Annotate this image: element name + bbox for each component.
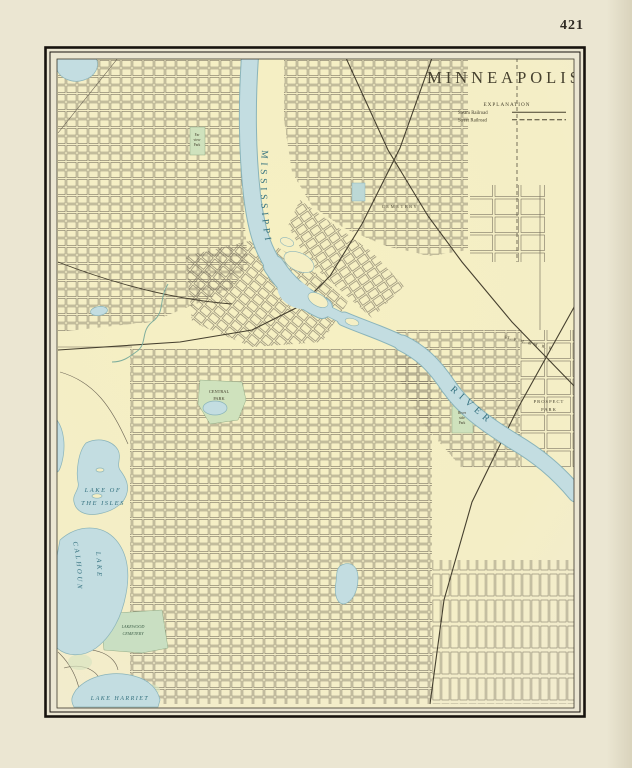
label-lake-harriet: LAKE HARRIET (90, 696, 150, 702)
grid-east-edge (470, 185, 545, 262)
label-central-park-2: PARK (213, 396, 225, 401)
grid-southeast-rows (432, 560, 578, 704)
atlas-page: 421 (0, 0, 632, 768)
label-riverside-3: Park (459, 421, 466, 425)
label-lakewood-2: CEMETERY (122, 631, 144, 636)
central-park-pond (203, 401, 227, 415)
harriet-park-patch (68, 654, 92, 670)
label-farview-3: Park (194, 143, 201, 147)
grid-south-minneapolis (130, 348, 432, 704)
label-riverside-2: side (459, 416, 465, 420)
label-farview-1: Far (195, 133, 201, 137)
label-lake-of-the-isles-2: THE ISLES (81, 500, 125, 507)
label-prospect-park-2: PARK (541, 407, 557, 412)
minneapolis-map: MINNEAPOLIS EXPLANATION Steam Railroad S… (0, 0, 632, 768)
legend-item-steam: Steam Railroad (458, 111, 488, 116)
label-prospect-park-1: PROSPECT (534, 399, 565, 404)
label-lakewood-1: LAKEWOOD (121, 624, 145, 629)
label-central-park-1: CENTRAL (209, 389, 230, 394)
label-lake-of-the-isles-1: LAKE OF (84, 487, 122, 494)
label-farview-2: view (194, 138, 201, 142)
legend-item-street: Street Railroad (458, 119, 488, 124)
legend-heading: EXPLANATION (483, 102, 530, 108)
label-cemetery: CEMETERY (382, 204, 419, 209)
map-title: MINNEAPOLIS (427, 68, 583, 87)
logan-park (352, 183, 365, 201)
label-riverside-1: River (458, 411, 467, 415)
